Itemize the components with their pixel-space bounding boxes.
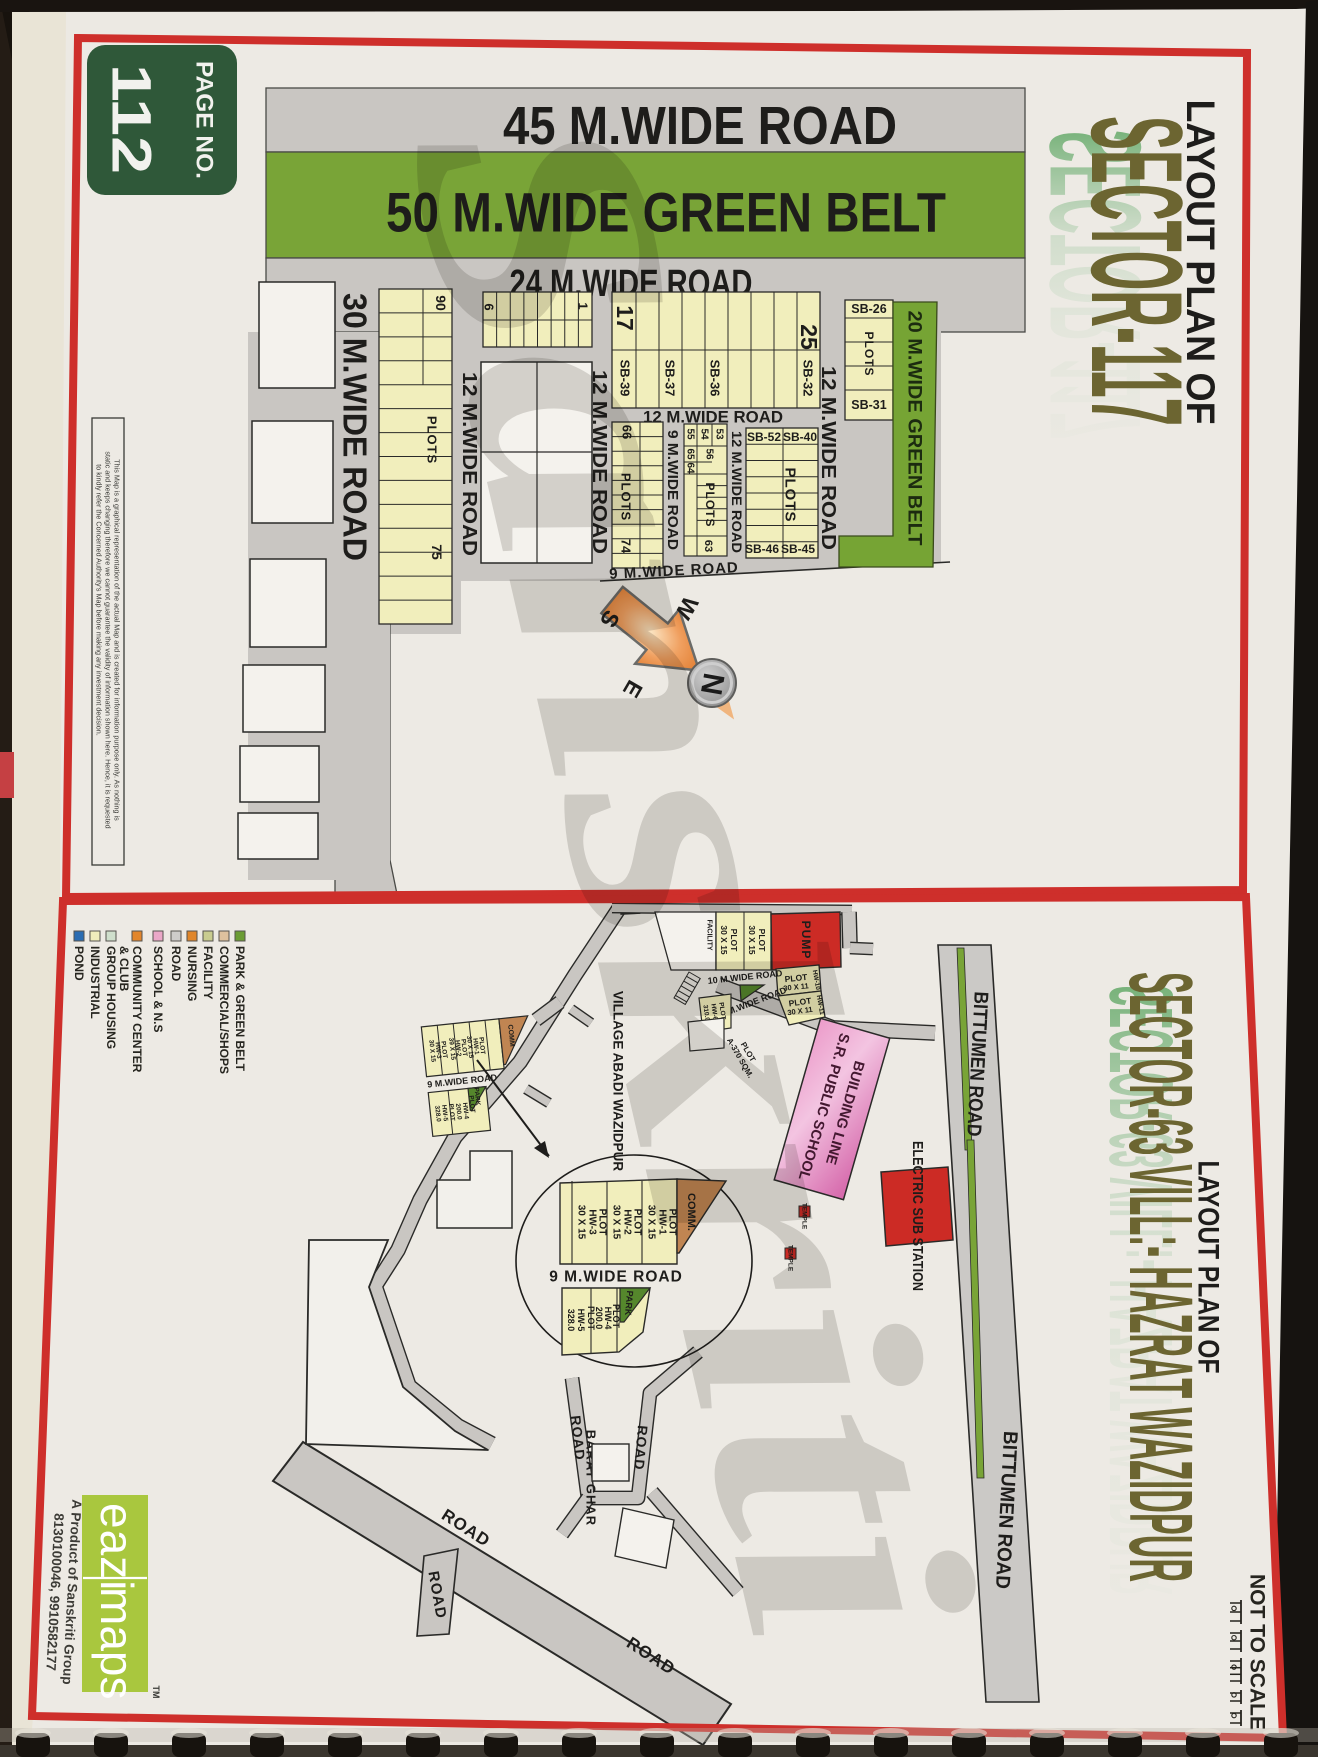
svg-text:20 M.WIDE GREEN BELT: 20 M.WIDE GREEN BELT (904, 311, 925, 546)
svg-text:112: 112 (101, 64, 164, 174)
svg-text:SB-40: SB-40 (783, 430, 817, 444)
svg-text:SB-32: SB-32 (801, 360, 816, 397)
svg-text:static and keeps changing ther: static and keeps changing therefore we c… (104, 451, 113, 828)
svg-text:NOT TO SCALE: NOT TO SCALE (1246, 1574, 1269, 1730)
svg-text:& CLUB: & CLUB (117, 946, 131, 992)
svg-text:SB-31: SB-31 (851, 398, 886, 412)
svg-text:SECTOR-117: SECTOR-117 (1064, 116, 1210, 426)
svg-text:30 M.WIDE ROAD: 30 M.WIDE ROAD (337, 293, 374, 561)
svg-text:328.0: 328.0 (566, 1309, 576, 1332)
svg-text:HW-5: HW-5 (576, 1309, 586, 1332)
svg-text:12 M.WIDE ROAD: 12 M.WIDE ROAD (817, 366, 839, 550)
svg-text:TM: TM (151, 1686, 161, 1699)
svg-text:to kindly refer the Concerned: to kindly refer the Concerned Authority'… (95, 464, 104, 735)
svg-text:NURSING: NURSING (185, 946, 199, 1001)
svg-text:This Map is a graphical repres: This Map is a graphical representation o… (113, 459, 122, 821)
svg-text:SCHOOL & N.S: SCHOOL & N.S (151, 946, 165, 1032)
svg-text:GROUP HOUSING: GROUP HOUSING (104, 946, 118, 1049)
svg-text:SB-26: SB-26 (851, 302, 886, 316)
svg-text:PAGE NO.: PAGE NO. (191, 61, 218, 179)
svg-text:200.0: 200.0 (594, 1307, 604, 1330)
svg-text:PARK & GREEN BELT: PARK & GREEN BELT (233, 946, 247, 1072)
svg-text:COMMUNITY CENTER: COMMUNITY CENTER (130, 946, 144, 1073)
svg-text:maps: maps (91, 1587, 143, 1699)
svg-text:POND: POND (72, 946, 86, 981)
svg-text:INDUSTRIAL: INDUSTRIAL (88, 946, 102, 1019)
svg-text:25: 25 (796, 324, 822, 350)
svg-text:PLOTS: PLOTS (862, 331, 876, 376)
svg-text:ROAD: ROAD (169, 946, 183, 982)
svg-text:FACILITY: FACILITY (201, 946, 215, 999)
svg-text:COMMERCIAL/SHOPS: COMMERCIAL/SHOPS (217, 946, 231, 1074)
svg-text:SECTOR-63 VILL:- HAZRAT WAZIDP: SECTOR-63 VILL:- HAZRAT WAZIDPUR (1110, 972, 1210, 1582)
